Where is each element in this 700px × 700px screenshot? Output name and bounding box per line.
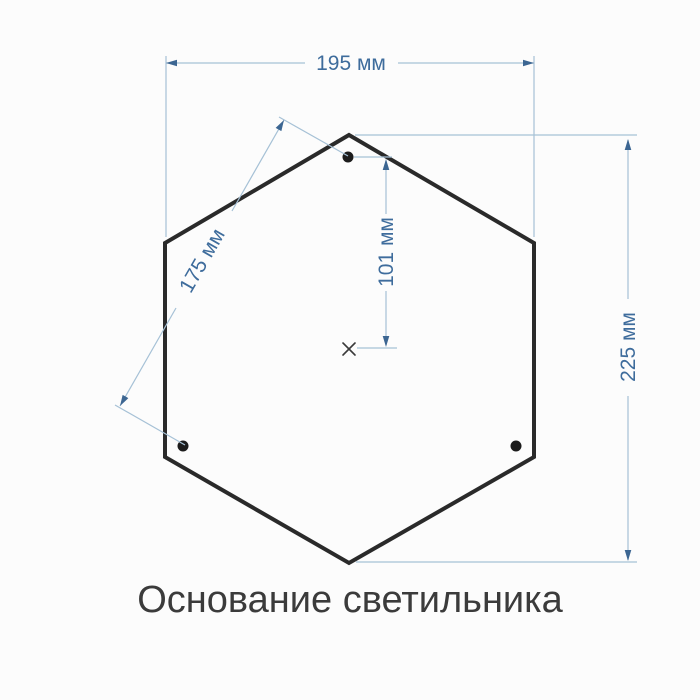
dimension-line [120, 308, 176, 406]
dimension-height: 225 мм [355, 135, 640, 562]
arrow-down-left-icon [117, 395, 128, 408]
diagram-svg: 195 мм 225 мм 175 мм [0, 0, 700, 700]
lamp-base-technical-drawing: 195 мм 225 мм 175 мм [0, 0, 700, 700]
dimension-hole-spacing-label: 175 мм [175, 225, 230, 297]
dimension-height-label: 225 мм [617, 312, 640, 382]
extension-line [115, 405, 185, 445]
arrow-up-icon [383, 159, 390, 170]
arrow-left-icon [166, 60, 177, 67]
arrow-down-icon [625, 550, 632, 561]
dimension-center-to-hole: 101 мм [354, 157, 398, 348]
center-cross-mark [343, 343, 355, 355]
mounting-hole-bottom-right [511, 441, 522, 452]
arrow-right-icon [523, 60, 534, 67]
diagram-title: Основание светильника [137, 579, 563, 621]
arrow-up-icon [625, 139, 632, 150]
dimension-hole-spacing: 175 мм [115, 117, 348, 445]
dimension-width-label: 195 мм [316, 52, 386, 75]
dimension-center-to-hole-label: 101 мм [375, 217, 398, 287]
extension-line [279, 117, 348, 156]
arrow-down-icon [383, 336, 390, 347]
dimension-line [232, 120, 284, 211]
